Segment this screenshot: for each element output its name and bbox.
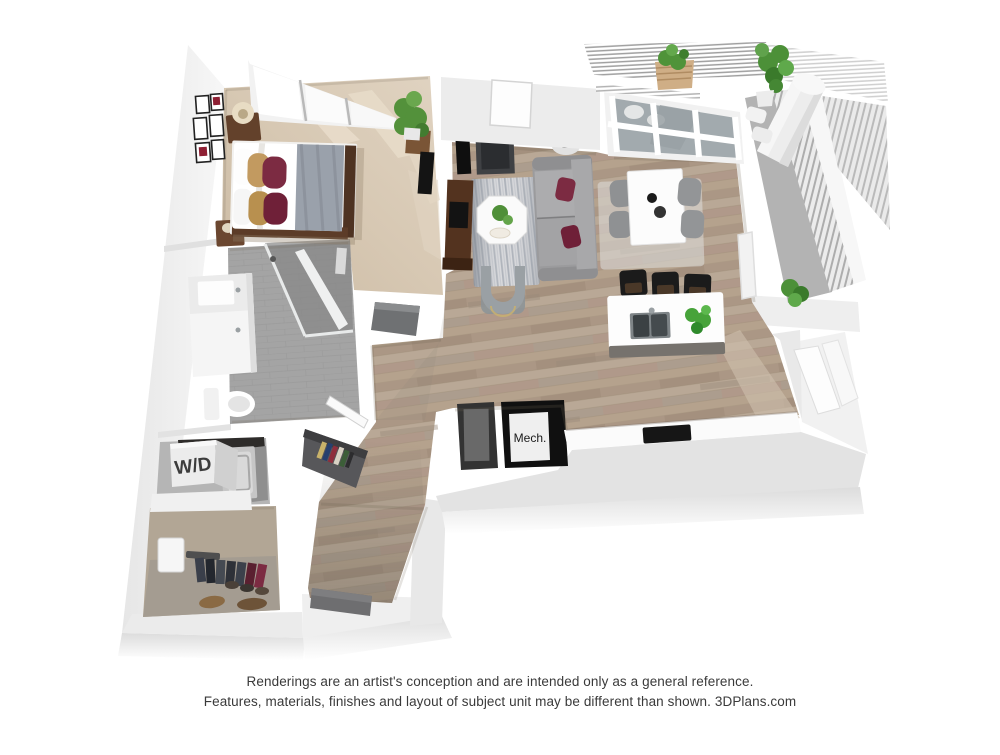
svg-text:Mech.: Mech.	[514, 431, 547, 445]
svg-text:W/D: W/D	[173, 454, 212, 479]
